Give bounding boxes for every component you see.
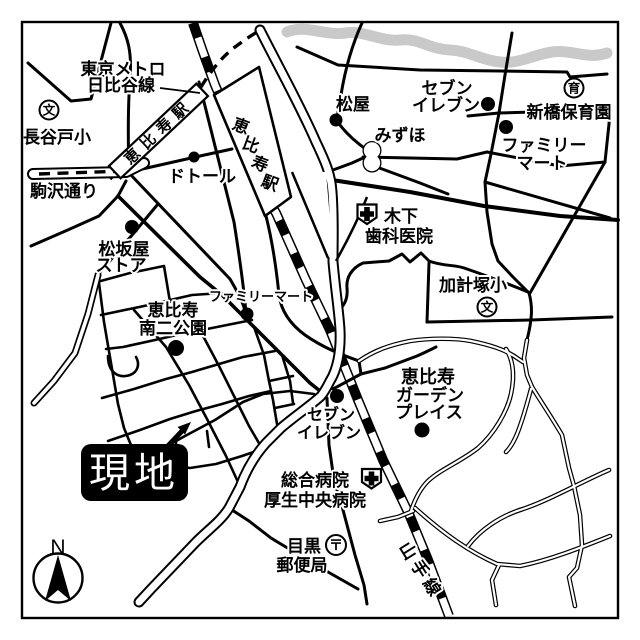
svg-text:〒: 〒 (329, 537, 343, 553)
svg-text:文: 文 (43, 103, 56, 118)
svg-text:セブン: セブン (307, 405, 355, 424)
svg-text:マート: マート (517, 154, 568, 173)
svg-text:恵比寿: 恵比寿 (401, 366, 455, 387)
svg-text:郵便局: 郵便局 (277, 555, 328, 575)
svg-text:恵比寿: 恵比寿 (148, 300, 199, 320)
svg-text:ファミリーマート: ファミリーマート (209, 289, 313, 304)
svg-text:プレイス: プレイス (395, 402, 463, 422)
svg-text:ドトール: ドトール (168, 167, 236, 186)
svg-text:歯科医院: 歯科医院 (365, 226, 433, 246)
svg-text:ストア: ストア (96, 256, 147, 275)
svg-text:木下: 木下 (383, 206, 418, 226)
svg-text:日比谷線: 日比谷線 (87, 75, 155, 95)
svg-text:新橋保育園: 新橋保育園 (527, 102, 612, 122)
svg-text:現地: 現地 (89, 450, 179, 496)
svg-text:総合病院: 総合病院 (281, 470, 349, 490)
svg-text:ファミリー: ファミリー (502, 136, 587, 155)
svg-text:みずほ: みずほ (375, 126, 426, 145)
svg-text:文: 文 (481, 300, 494, 315)
svg-text:イレブン: イレブン (297, 423, 361, 442)
svg-text:ガーデン: ガーデン (396, 385, 464, 405)
svg-text:南二公園: 南二公園 (139, 318, 207, 338)
svg-text:加計塚小: 加計塚小 (438, 275, 507, 295)
svg-text:セブン: セブン (422, 78, 473, 98)
svg-text:イレブン: イレブン (412, 95, 480, 115)
svg-text:長谷戸小: 長谷戸小 (23, 128, 91, 147)
svg-text:育: 育 (568, 81, 581, 96)
svg-text:松屋: 松屋 (336, 94, 370, 114)
svg-text:駒沢通り: 駒沢通り (30, 181, 98, 201)
svg-text:厚生中央病院: 厚生中央病院 (264, 490, 366, 510)
svg-text:目黒: 目黒 (287, 537, 321, 556)
